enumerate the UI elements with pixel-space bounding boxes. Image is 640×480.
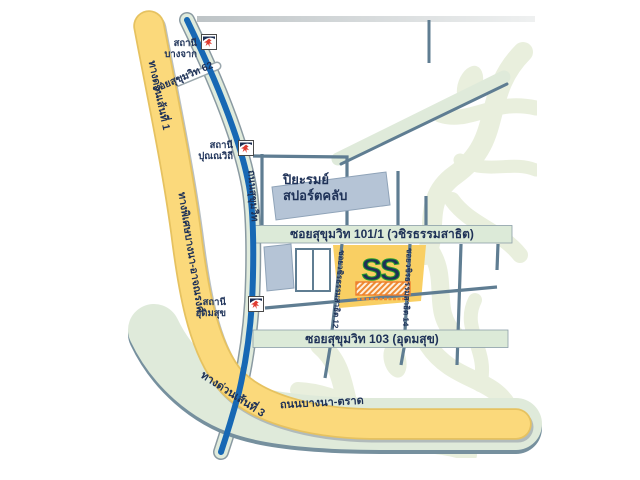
station-label-bangchak: สถานี บางจาก <box>164 37 197 60</box>
svg-text:บางจาก: บางจาก <box>164 49 197 60</box>
soi101-label: ซอยสุขุมวิท 101/1 (วชิรธรรมสาธิต) <box>290 227 474 242</box>
top-road-strip <box>197 16 535 22</box>
svg-text:ปิยะรมย์: ปิยะรมย์ <box>282 172 329 187</box>
logo-banner <box>356 282 410 295</box>
svg-text:สถานี: สถานี <box>210 139 234 151</box>
svg-text:ปุณณวิถี: ปุณณวิถี <box>198 150 233 162</box>
bts-station-icon-punnawithi <box>239 141 254 156</box>
map-canvas: SS สถานี บางจาก สถานี ปุณณวิถี สถานี อุด… <box>0 0 640 480</box>
location-map: SS สถานี บางจาก สถานี ปุณณวิถี สถานี อุด… <box>0 0 640 480</box>
station-label-punnawithi: สถานี ปุณณวิถี <box>198 139 233 162</box>
city-block-outline <box>296 249 330 291</box>
soi103-label: ซอยสุขุมวิท 103 (อุดมสุข) <box>305 332 439 347</box>
bts-station-icon-bangchak <box>202 35 217 50</box>
svg-text:สถานี: สถานี <box>174 37 198 49</box>
sports-club-label: ปิยะรมย์ สปอร์ตคลับ <box>282 172 347 203</box>
bts-station-icon-udomsuk <box>249 297 264 312</box>
building-west <box>264 244 294 291</box>
svg-text:สปอร์ตคลับ: สปอร์ตคลับ <box>283 188 347 203</box>
